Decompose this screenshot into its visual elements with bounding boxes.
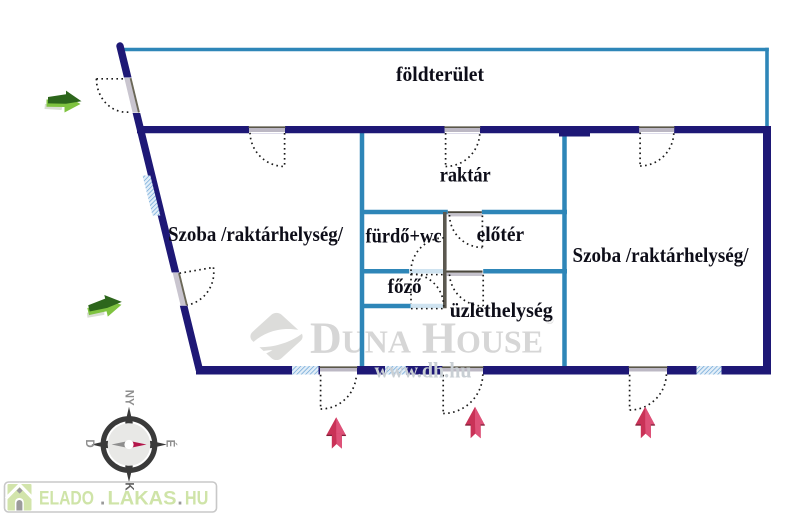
svg-text:ELADO: ELADO bbox=[39, 488, 94, 509]
svg-text:raktár: raktár bbox=[440, 163, 491, 187]
svg-text:É: É bbox=[164, 440, 177, 448]
svg-text:főző: főző bbox=[388, 274, 422, 298]
svg-text:.: . bbox=[100, 488, 105, 509]
svg-text:földterület: földterület bbox=[396, 62, 484, 86]
svg-text:www.dh.hu: www.dh.hu bbox=[375, 358, 472, 383]
svg-text:Szoba /raktárhelység/: Szoba /raktárhelység/ bbox=[573, 243, 750, 267]
svg-text:NY: NY bbox=[123, 390, 135, 406]
svg-text:Szoba /raktárhelység/: Szoba /raktárhelység/ bbox=[168, 222, 344, 246]
svg-text:fürdő+wc: fürdő+wc bbox=[366, 224, 442, 248]
svg-text:előtér: előtér bbox=[477, 222, 525, 246]
svg-text:LAKAS: LAKAS bbox=[108, 488, 177, 509]
svg-text:D: D bbox=[83, 439, 95, 447]
svg-text:üzlethelység: üzlethelység bbox=[450, 298, 553, 322]
svg-text:.: . bbox=[177, 488, 182, 509]
svg-text:HU: HU bbox=[185, 488, 209, 509]
